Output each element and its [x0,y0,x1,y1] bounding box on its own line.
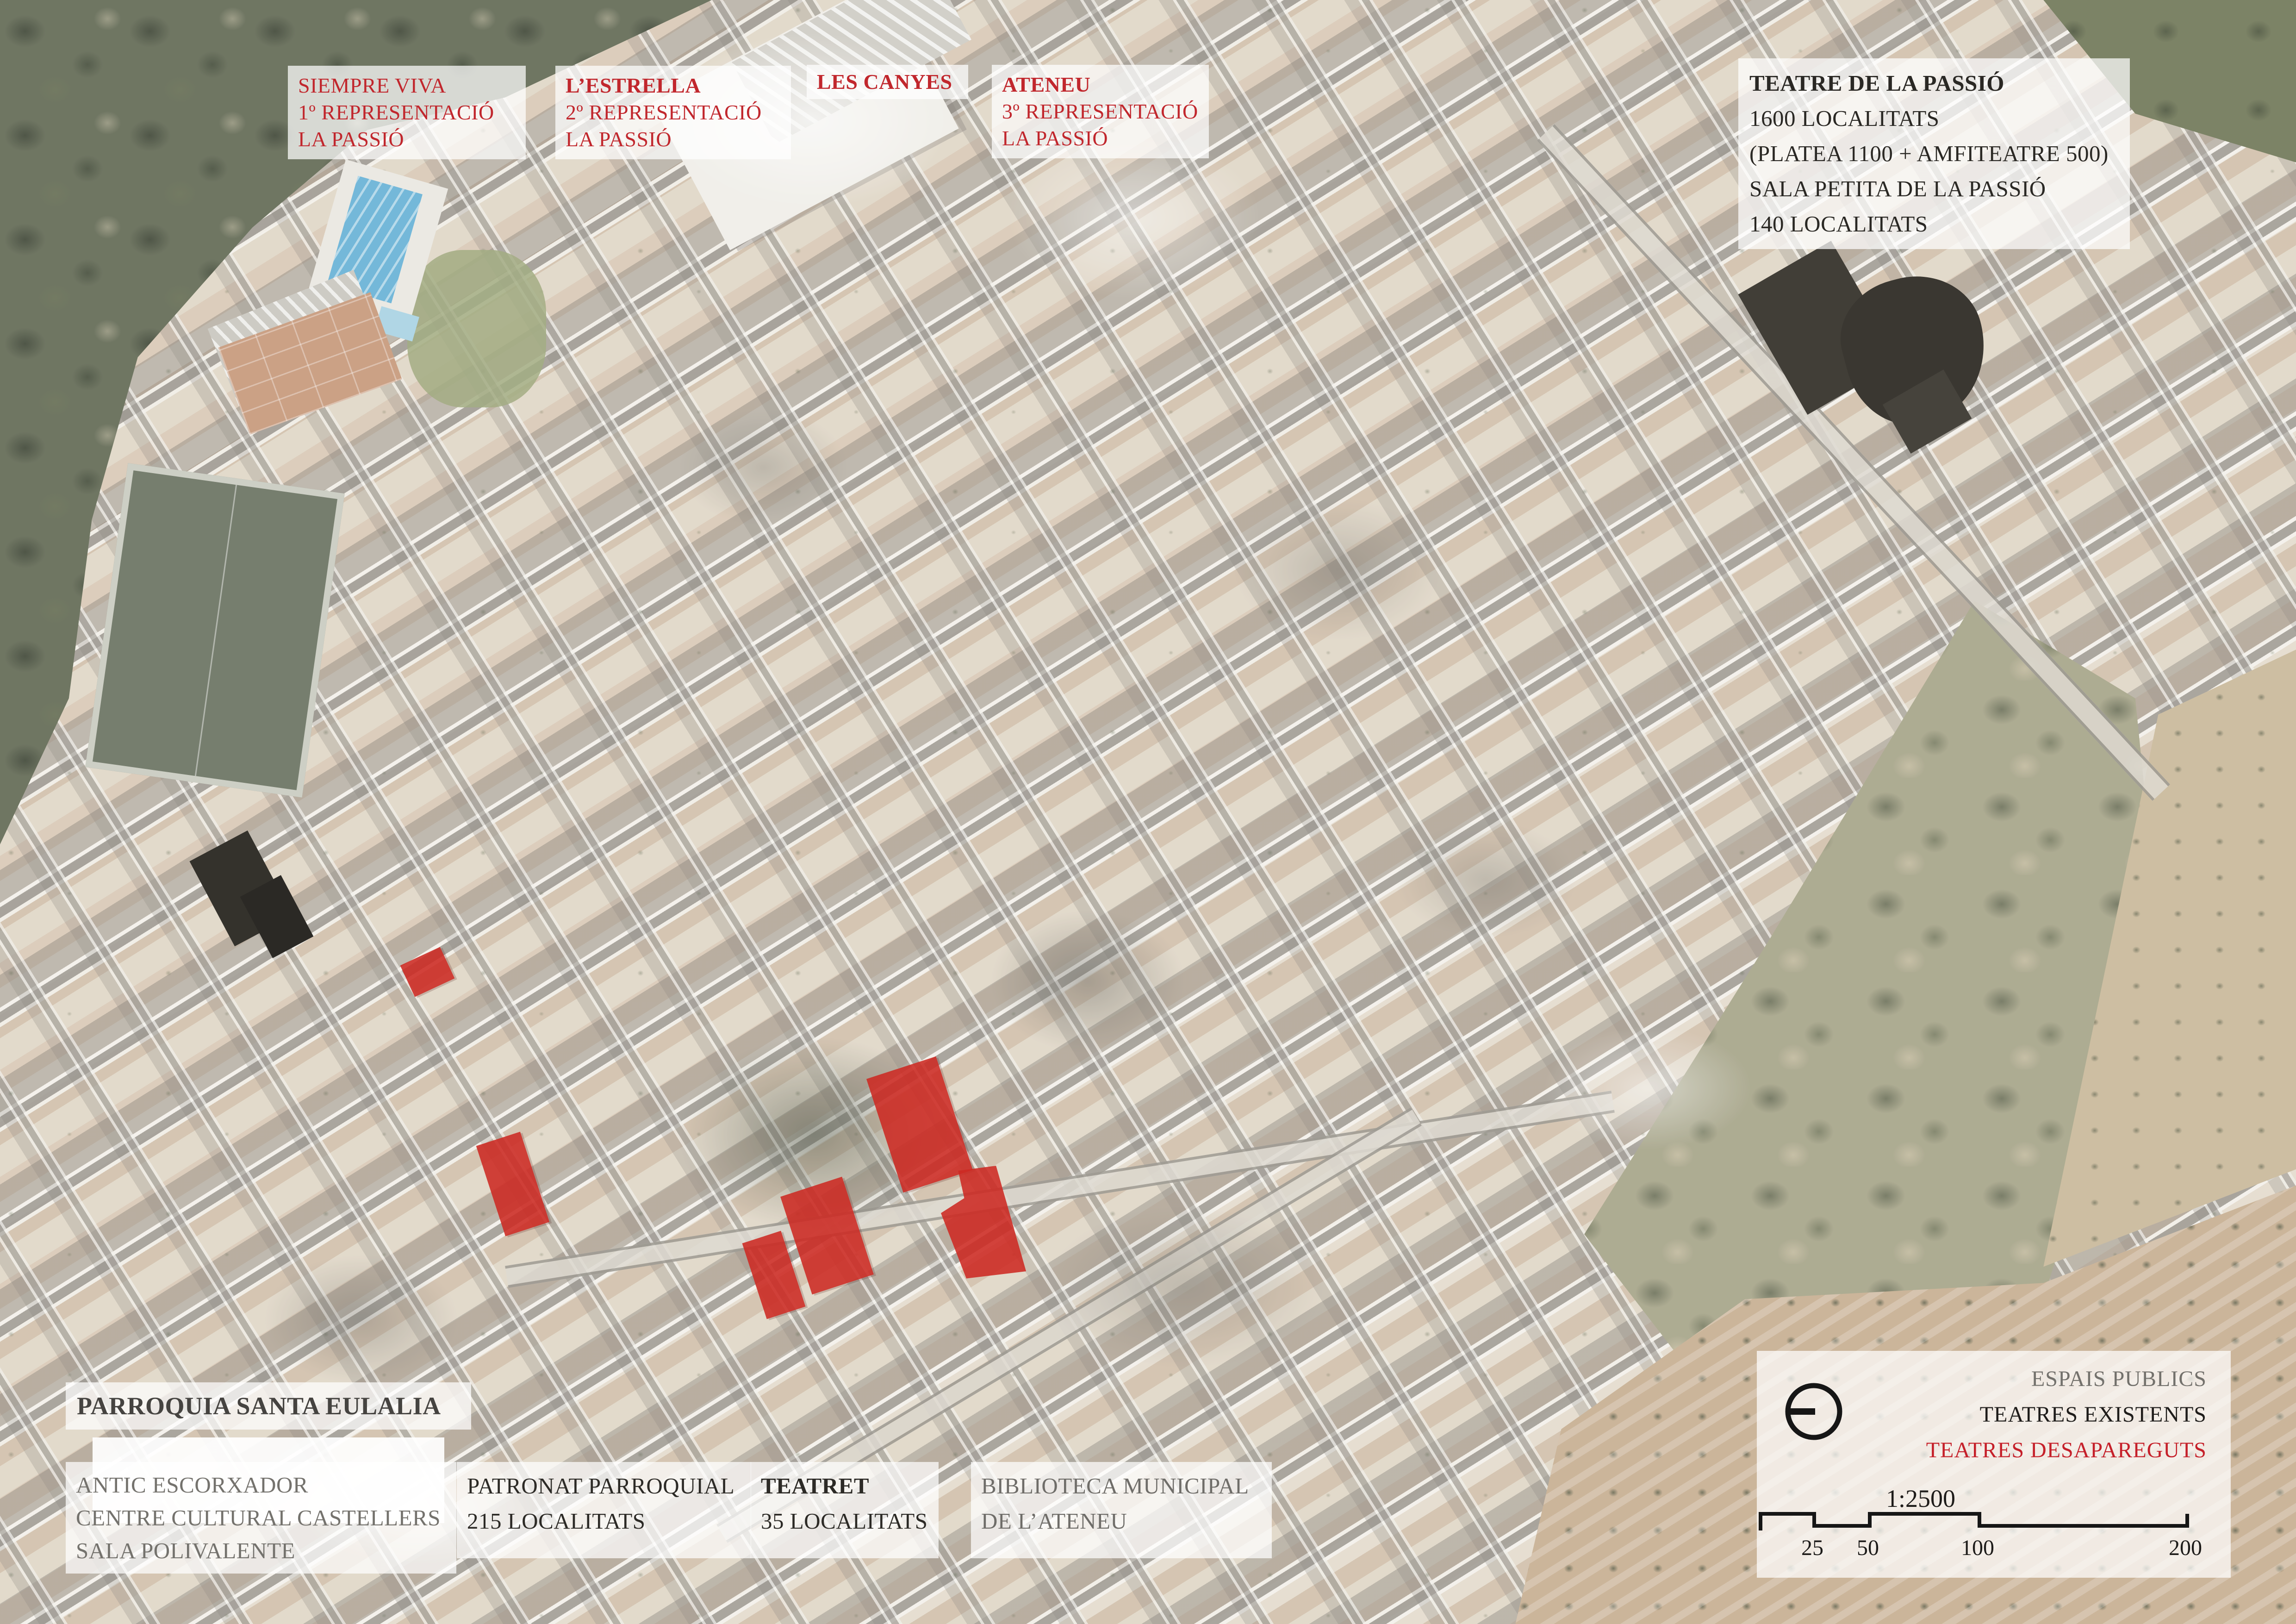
label-line: SALA PETITA DE LA PASSIÓ [1749,171,2119,206]
label-line: SALA POLIVALENTE [76,1534,446,1567]
label-patronat-parroquial: PATRONAT PARROQUIAL 215 LOCALITATS [457,1462,751,1558]
label-line: 2º REPRESENTACIÓ [566,99,781,126]
scale-tick-100: 100 [1950,1535,2005,1561]
label-les-canyes: LES CANYES [807,65,968,99]
scale-tick-25: 25 [1785,1535,1840,1561]
label-line: BIBLIOTECA MUNICIPAL [981,1468,1262,1504]
label-line: ATENEU [1002,71,1199,98]
label-line: 3º REPRESENTACIÓ [1002,98,1199,125]
label-line: 140 LOCALITATS [1749,206,2119,242]
label-line: (PLATEA 1100 + AMFITEATRE 500) [1749,136,2119,171]
legend-entries: ESPAIS PUBLICS TEATRES EXISTENTS TEATRES… [1926,1361,2207,1468]
label-parroquia-santa-eulalia: PARROQUIA SANTA EULALIA [66,1382,471,1430]
label-line: L’ESTRELLA [566,72,781,99]
label-siempre-viva: SIEMPRE VIVA 1º REPRESENTACIÓ LA PASSIÓ [288,66,526,159]
compass-icon [1784,1381,1844,1442]
legend-entry-teatres-desapareguts: TEATRES DESAPAREGUTS [1926,1432,2207,1468]
label-estrella: L’ESTRELLA 2º REPRESENTACIÓ LA PASSIÓ [555,66,791,159]
label-line: PARROQUIA SANTA EULALIA [77,1392,460,1420]
label-line: TEATRE DE LA PASSIÓ [1749,66,2119,101]
legend-entry-teatres-existents: TEATRES EXISTENTS [1926,1397,2207,1432]
label-teatret: TEATRET 35 LOCALITATS [751,1462,939,1558]
aerial-map: SIEMPRE VIVA 1º REPRESENTACIÓ LA PASSIÓ … [0,0,2296,1624]
label-line: CENTRE CULTURAL CASTELLERS [76,1501,446,1534]
label-line: 215 LOCALITATS [467,1504,741,1539]
scale-bar [1759,1509,2191,1532]
legend-entry-espais-publics: ESPAIS PUBLICS [1926,1361,2207,1397]
label-line: DE L’ATENEU [981,1504,1262,1539]
scale-tick-200: 200 [2158,1535,2213,1561]
label-teatre-de-la-passio: TEATRE DE LA PASSIÓ 1600 LOCALITATS (PLA… [1738,58,2130,249]
label-antic-escorxador: ANTIC ESCORXADOR CENTRE CULTURAL CASTELL… [66,1462,456,1574]
label-line: LA PASSIÓ [298,126,516,153]
label-ateneu: ATENEU 3º REPRESENTACIÓ LA PASSIÓ [992,65,1209,158]
label-line: TEATRET [761,1468,928,1504]
label-line: SIEMPRE VIVA [298,72,516,99]
label-line: 1600 LOCALITATS [1749,101,2119,136]
scale-tick-50: 50 [1840,1535,1896,1561]
label-line: ANTIC ESCORXADOR [76,1468,446,1501]
label-line: LA PASSIÓ [1002,125,1199,152]
label-line: PATRONAT PARROQUIAL [467,1468,741,1504]
scale-ratio: 1:2500 [1828,1484,2013,1513]
label-line: 1º REPRESENTACIÓ [298,99,516,126]
label-line: LES CANYES [817,69,958,95]
label-line: LA PASSIÓ [566,126,781,153]
label-biblioteca-municipal: BIBLIOTECA MUNICIPAL DE L’ATENEU [971,1462,1272,1558]
label-line: 35 LOCALITATS [761,1504,928,1539]
legend-panel: ESPAIS PUBLICS TEATRES EXISTENTS TEATRES… [1757,1351,2231,1578]
